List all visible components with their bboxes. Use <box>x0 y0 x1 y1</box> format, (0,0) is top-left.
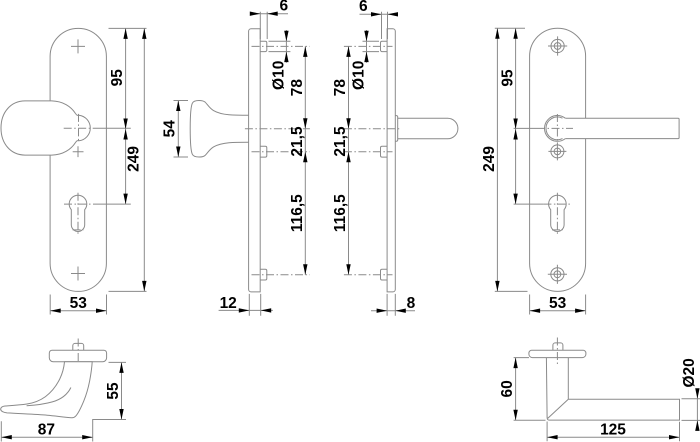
svg-text:54: 54 <box>161 120 178 138</box>
svg-text:249: 249 <box>481 146 498 172</box>
svg-text:6: 6 <box>279 0 288 14</box>
svg-text:12: 12 <box>220 295 237 312</box>
svg-text:78: 78 <box>332 79 349 97</box>
svg-text:55: 55 <box>105 382 122 400</box>
svg-text:95: 95 <box>109 69 126 87</box>
svg-text:78: 78 <box>289 79 306 97</box>
svg-text:Ø10: Ø10 <box>350 61 367 90</box>
svg-text:116,5: 116,5 <box>289 194 306 232</box>
svg-text:Ø10: Ø10 <box>270 61 287 90</box>
svg-text:Ø20: Ø20 <box>681 358 698 387</box>
svg-text:21,5: 21,5 <box>289 126 306 157</box>
svg-text:95: 95 <box>500 69 517 87</box>
svg-text:116,5: 116,5 <box>332 194 349 232</box>
svg-text:53: 53 <box>549 295 567 312</box>
svg-text:21,5: 21,5 <box>332 126 349 157</box>
svg-text:53: 53 <box>70 295 88 312</box>
svg-text:60: 60 <box>499 380 516 397</box>
svg-text:8: 8 <box>407 295 416 312</box>
svg-text:87: 87 <box>38 422 55 439</box>
svg-text:249: 249 <box>126 146 143 172</box>
svg-text:125: 125 <box>600 422 626 439</box>
svg-text:6: 6 <box>359 0 368 15</box>
